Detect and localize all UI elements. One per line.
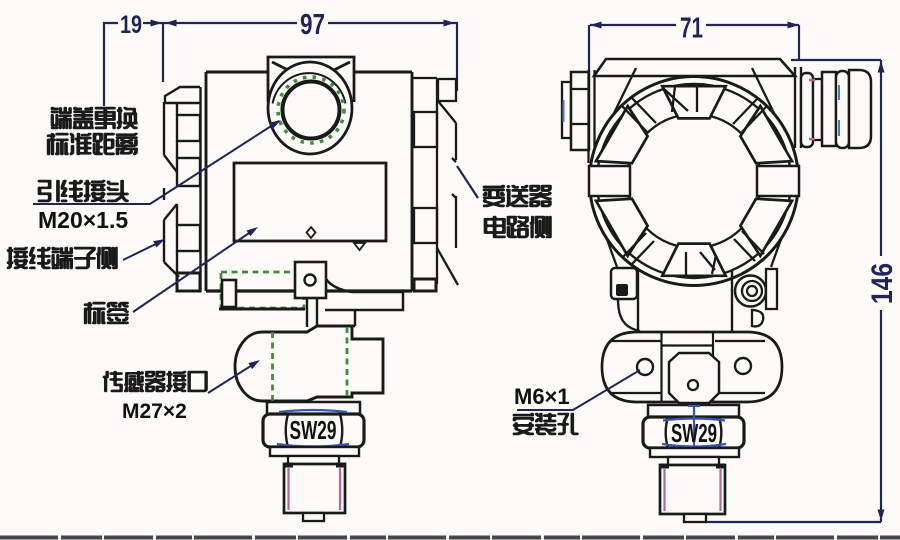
- svg-text:M27×2: M27×2: [122, 400, 187, 423]
- svg-text:97: 97: [300, 9, 325, 41]
- svg-text:SW29: SW29: [671, 418, 717, 448]
- svg-text:SW29: SW29: [290, 415, 337, 445]
- svg-text:M20×1.5: M20×1.5: [38, 207, 128, 233]
- svg-text:71: 71: [680, 13, 703, 45]
- svg-text:19: 19: [120, 11, 142, 39]
- svg-text:146: 146: [866, 263, 899, 304]
- svg-text:M6×1: M6×1: [514, 384, 570, 409]
